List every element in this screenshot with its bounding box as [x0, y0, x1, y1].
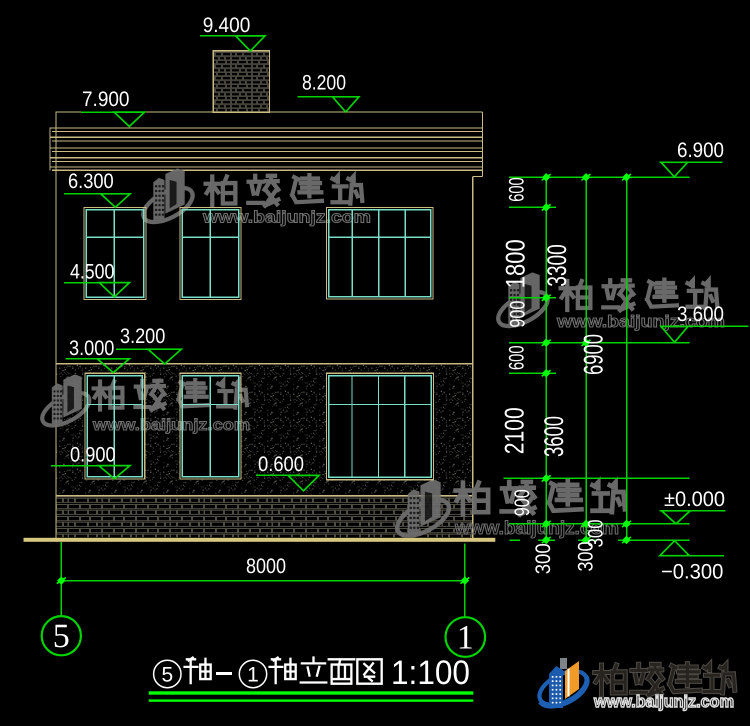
svg-text:0.900: 0.900	[70, 444, 116, 467]
svg-text:www.baijunjz.com: www.baijunjz.com	[593, 692, 734, 711]
svg-text:4.500: 4.500	[70, 261, 114, 284]
svg-text:1: 1	[457, 620, 474, 657]
svg-text:8000: 8000	[246, 555, 286, 578]
svg-text:2100: 2100	[499, 407, 529, 454]
svg-text:1:100: 1:100	[391, 654, 470, 692]
svg-text:8.200: 8.200	[302, 72, 346, 95]
svg-text:3.200: 3.200	[120, 325, 165, 348]
svg-text:3600: 3600	[539, 416, 569, 457]
svg-text:www.baijunjz.com: www.baijunjz.com	[92, 417, 250, 434]
svg-text:900: 900	[511, 489, 534, 516]
svg-text:1: 1	[247, 664, 259, 687]
svg-text:±0.000: ±0.000	[664, 488, 725, 511]
svg-text:0.600: 0.600	[258, 453, 304, 476]
svg-text:9.400: 9.400	[203, 14, 251, 37]
svg-text:5: 5	[53, 618, 70, 655]
svg-text:600: 600	[506, 177, 529, 202]
svg-text:3.000: 3.000	[69, 337, 114, 360]
svg-text:6.900: 6.900	[677, 139, 724, 162]
svg-text:www.baijunjz.com: www.baijunjz.com	[202, 209, 371, 227]
svg-text:6900: 6900	[579, 334, 609, 375]
svg-text:300: 300	[585, 519, 608, 547]
svg-text:300: 300	[532, 543, 555, 574]
svg-text:5: 5	[161, 664, 173, 687]
svg-text:7.900: 7.900	[82, 88, 130, 111]
svg-text:1800: 1800	[501, 239, 531, 288]
svg-text:−0.300: −0.300	[661, 561, 723, 584]
svg-text:3300: 3300	[542, 244, 572, 287]
svg-text:3.600: 3.600	[677, 303, 724, 326]
svg-text:600: 600	[506, 346, 529, 371]
svg-text:900: 900	[507, 301, 530, 328]
svg-text:6.300: 6.300	[68, 170, 114, 193]
